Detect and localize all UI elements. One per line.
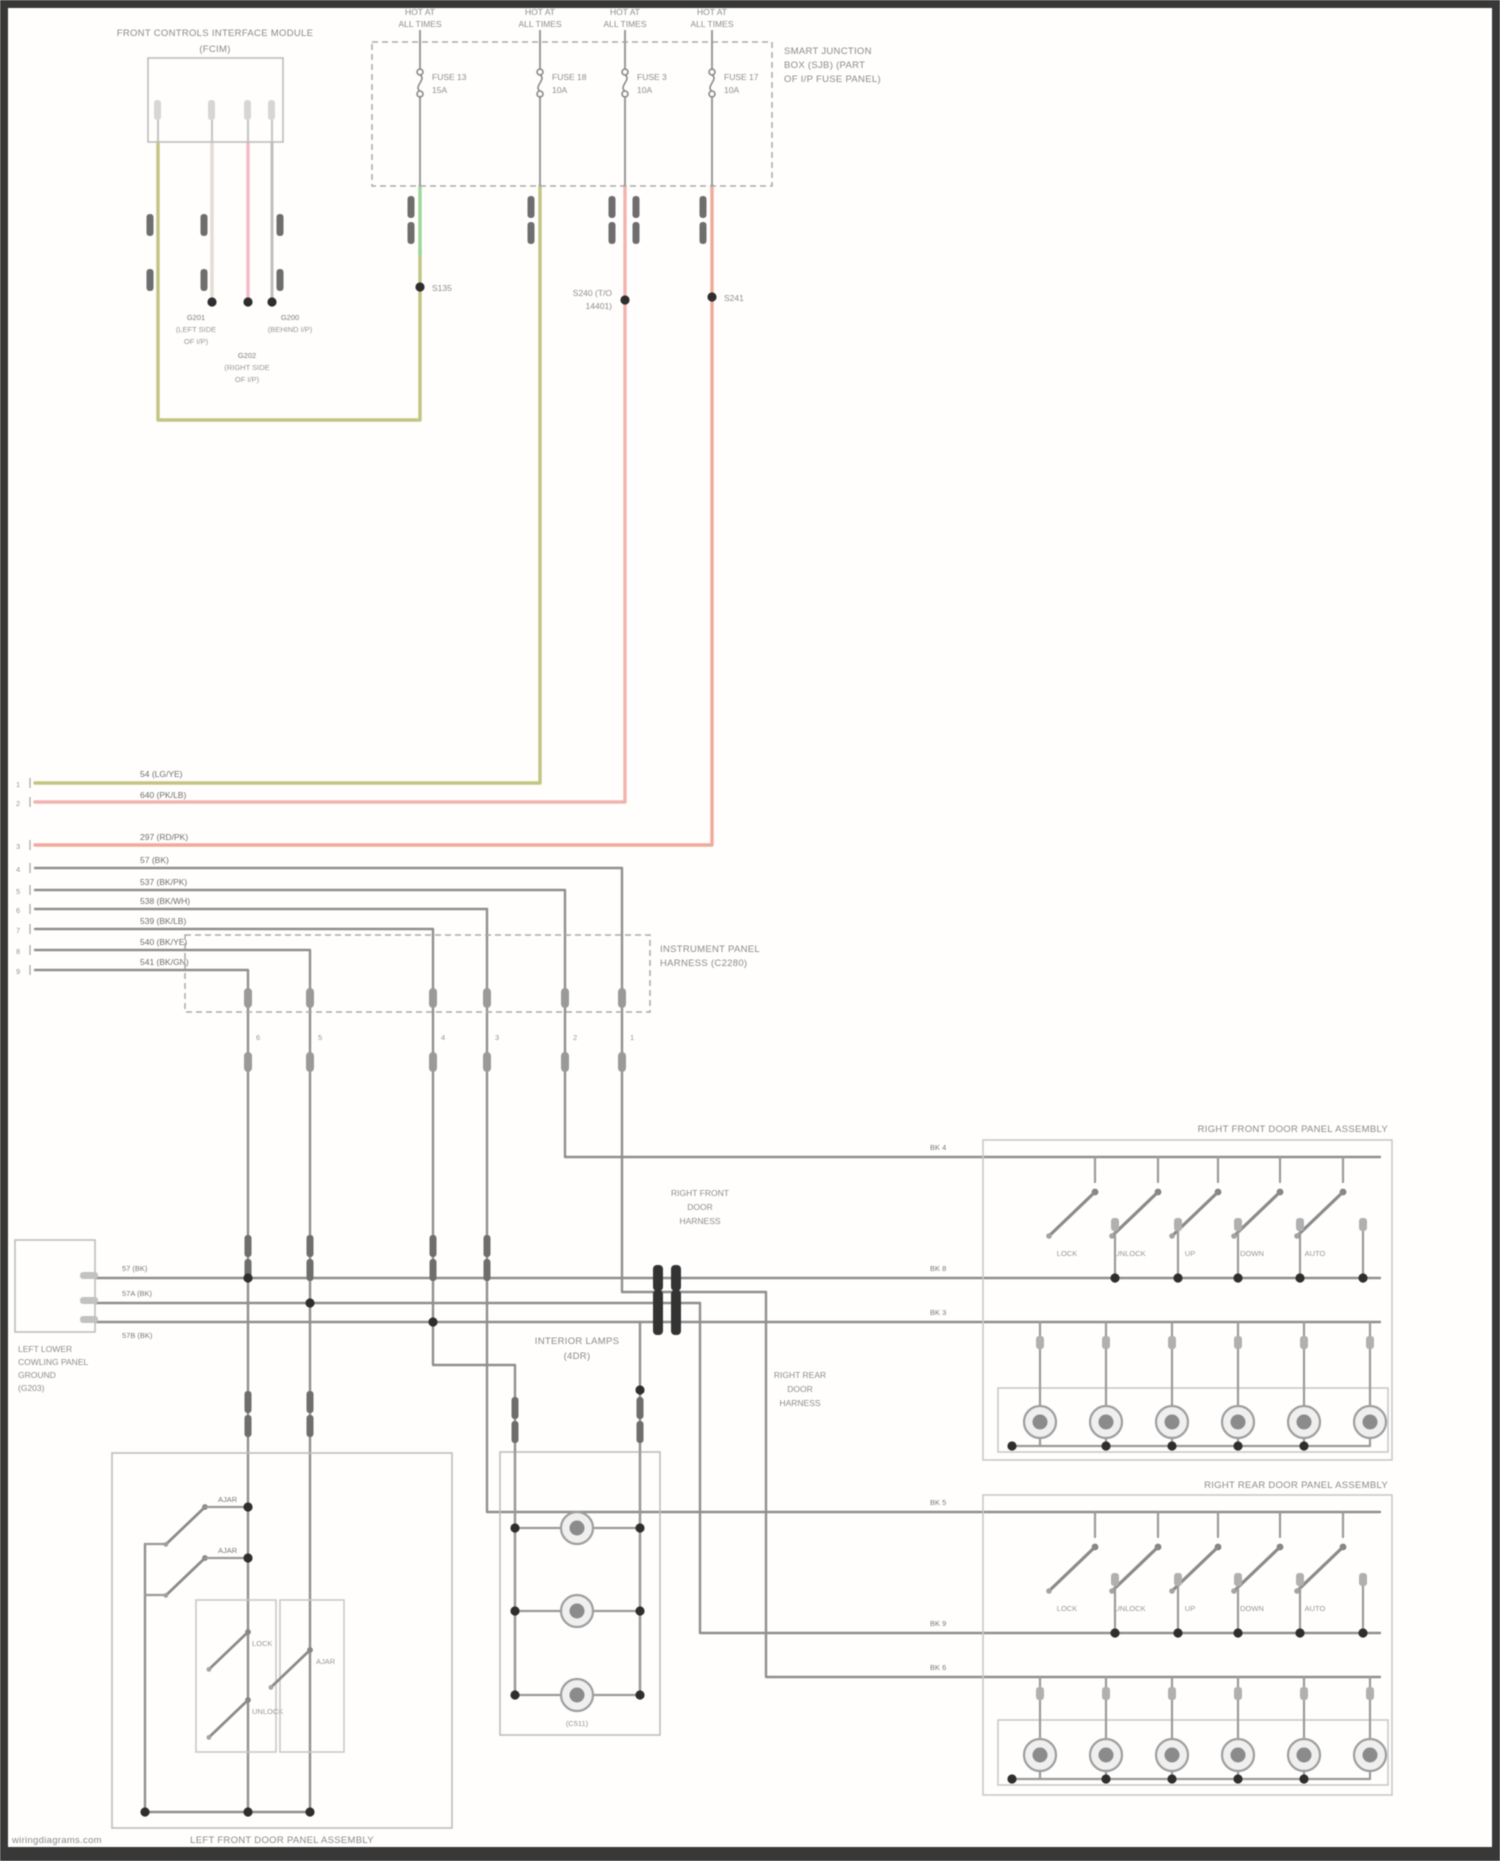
watermark: wiringdiagrams.com (11, 1835, 102, 1846)
lock-switch (207, 1629, 251, 1672)
panel2-harness-2: DOOR (787, 1384, 813, 1394)
panel2-harness-1: RIGHT REAR (774, 1370, 826, 1380)
lamp-box-buses (515, 1452, 640, 1695)
unlock-switch-label: UNLOCK (252, 1707, 283, 1716)
unlock-switch (207, 1697, 251, 1740)
g201-line1: G201 (187, 313, 205, 322)
panel1-switch-5 (1294, 1189, 1346, 1239)
pin-2: 2 (16, 799, 20, 808)
c2280-dashed-box (185, 935, 650, 1012)
c2280-pin-4: 3 (495, 1033, 499, 1042)
splice-s240-line2: 14401) (586, 301, 613, 311)
panel2-sw4-label: DOWN (1240, 1604, 1264, 1613)
sjb-line1: SMART JUNCTION (784, 46, 872, 57)
wire-salmon-fuse4-to-left (35, 186, 712, 845)
panel2-switch-5 (1294, 1544, 1346, 1594)
gb-wire-3: 57B (BK) (122, 1331, 153, 1340)
module-fcim: FRONT CONTROLS INTERFACE MODULE (FCIM) G… (117, 28, 314, 384)
g202-line3: OF I/P) (235, 375, 260, 384)
ground-point-g202 (243, 297, 252, 306)
wire-left-door-ground-bus (145, 1544, 310, 1812)
pin-9: 9 (16, 967, 20, 976)
hot-label-1a: HOT AT (405, 7, 435, 17)
gb-label-3: GROUND (18, 1370, 56, 1380)
module-title-line1: FRONT CONTROLS INTERFACE MODULE (117, 28, 314, 39)
module-title-line2: (FCIM) (199, 44, 230, 55)
fuse-3-amps: 10A (637, 85, 652, 95)
fuse-1-name: FUSE 13 (432, 72, 467, 82)
wire-label-3: 297 (RD/PK) (140, 832, 188, 842)
lamp-box-title-1: INTERIOR LAMPS (535, 1336, 619, 1347)
pin-3: 3 (16, 842, 20, 851)
door-ajar-switch-1 (164, 1504, 208, 1547)
wiring-diagram: FRONT CONTROLS INTERFACE MODULE (FCIM) G… (0, 0, 1500, 1861)
panel2-lamps (998, 1677, 1388, 1785)
fuse-4-name: FUSE 17 (724, 72, 759, 82)
wire-gray-5 (35, 950, 310, 1812)
right-front-door-panel: RIGHT FRONT DOOR PANEL ASSEMBLY BK 4 BK … (671, 1124, 1392, 1460)
wiring-diagram-page: FRONT CONTROLS INTERFACE MODULE (FCIM) G… (0, 0, 1500, 1861)
splice-s135 (415, 282, 424, 291)
panel1-harness-label: RIGHT FRONT DOOR HARNESS (671, 1188, 729, 1226)
lamp-box-title-2: (4DR) (564, 1351, 591, 1362)
g202-line2: (RIGHT SIDE (224, 363, 269, 372)
pin-8: 8 (16, 947, 20, 956)
panel2-title: RIGHT REAR DOOR PANEL ASSEMBLY (1204, 1480, 1388, 1491)
panel1-feed-1: BK 4 (930, 1143, 946, 1152)
panel1-sw5-label: AUTO (1305, 1249, 1326, 1258)
g201-line3: OF I/P) (184, 337, 209, 346)
wire-label-8: 540 (BK/YE) (140, 937, 187, 947)
g200-line1: G200 (281, 313, 299, 322)
pin-7: 7 (16, 926, 20, 935)
c2280-pin-3: 4 (441, 1033, 445, 1042)
pin-6: 6 (16, 906, 20, 915)
panel2-sw2-label: UNLOCK (1114, 1604, 1145, 1613)
ground-labels: G201 (LEFT SIDE OF I/P) G202 (RIGHT SIDE… (176, 313, 313, 384)
c2280-pin-6: 1 (630, 1033, 634, 1042)
pin-4: 4 (16, 865, 20, 874)
door-ajar-switch-3 (269, 1647, 313, 1690)
hot-label-2a: HOT AT (525, 7, 555, 17)
fuse-3-name: FUSE 3 (637, 72, 667, 82)
ajar-switch-1-label: AJAR (218, 1495, 238, 1504)
gb-wire-1: 57 (BK) (122, 1264, 148, 1273)
panel2-switch-1 (1046, 1544, 1098, 1594)
fuse-4-amps: 10A (724, 85, 739, 95)
courtesy-lamp-2-icon (561, 1595, 593, 1627)
module-wire-connectors (147, 214, 284, 291)
panel1-feed-3: BK 3 (930, 1308, 946, 1317)
wire-gray-6 (35, 970, 248, 1812)
hot-label-3a: HOT AT (610, 7, 640, 17)
panel1-harness-3: HARNESS (679, 1216, 720, 1226)
hot-label-3b: ALL TIMES (604, 19, 647, 29)
fuse-3-icon (622, 69, 628, 97)
lock-switch-box (196, 1600, 276, 1752)
g201-line2: (LEFT SIDE (176, 325, 216, 334)
panel2-switch-2 (1109, 1544, 1161, 1594)
splice-s240-line1: S240 (T/O (573, 288, 613, 298)
c2280-label-line2: HARNESS (C2280) (660, 958, 747, 969)
left-edge-pin-numbers: 1 2 3 4 5 6 7 8 9 (16, 780, 20, 976)
left-door-panel: AJAR AJAR LOCK UNLOCK AJAR LEFT FRONT DO… (112, 1453, 452, 1846)
ajar-junction-2 (243, 1553, 252, 1562)
wire-label-4: 57 (BK) (140, 855, 169, 865)
interior-lamp-box: INTERIOR LAMPS (4DR) (C511) (500, 1336, 660, 1735)
panel2-feed-3: BK 6 (930, 1663, 946, 1672)
fuse-1-amps: 15A (432, 85, 447, 95)
pin-5: 5 (16, 887, 20, 896)
panel1-sw2-label: UNLOCK (1114, 1249, 1145, 1258)
c2280-pins-lower (244, 1052, 626, 1072)
c2280-pins-upper (244, 988, 626, 1008)
wire-gray-4 (35, 929, 515, 1695)
page-frame (0, 0, 1500, 1861)
sjb-label: SMART JUNCTION BOX (SJB) (PART OF I/P FU… (784, 46, 881, 85)
ajar-junction-1 (243, 1502, 252, 1511)
wire-label-6: 538 (BK/WH) (140, 896, 190, 906)
panel1-sw4-label: DOWN (1240, 1249, 1264, 1258)
panel1-feed-labels: BK 4 BK 8 BK 3 (930, 1143, 946, 1317)
panel2-feed-2: BK 9 (930, 1619, 946, 1628)
ajar-switch-3-label: AJAR (316, 1657, 336, 1666)
panel1-switch-2 (1109, 1189, 1161, 1239)
panel1-switches: LOCK UNLOCK UP DOWN AUTO (1046, 1157, 1367, 1283)
sjb-line2: BOX (SJB) (PART (784, 60, 865, 71)
panel2-sw1-label: LOCK (1057, 1604, 1077, 1613)
wire-label-1: 54 (LG/YE) (140, 769, 183, 779)
lock-switch-label: LOCK (252, 1639, 272, 1648)
courtesy-lamp-1-icon (561, 1512, 593, 1544)
left-door-box (112, 1453, 452, 1828)
hot-label-1b: ALL TIMES (399, 19, 442, 29)
ground-junction-dots (243, 1273, 644, 1394)
gb-wire-2: 57A (BK) (122, 1289, 153, 1298)
panel1-sw1-label: LOCK (1057, 1249, 1077, 1258)
ajar-switch-box (280, 1600, 344, 1752)
hot-at-all-times-labels: HOT AT ALL TIMES HOT AT ALL TIMES HOT AT… (399, 7, 734, 29)
power-wires (35, 142, 712, 845)
pin-1: 1 (16, 780, 20, 789)
splice-s241 (707, 292, 716, 301)
wire-olive-fuse2-to-left (35, 186, 540, 783)
wire-label-5: 537 (BK/PK) (140, 877, 187, 887)
ground-junction-box: 57 (BK) 57A (BK) 57B (BK) LEFT LOWER COW… (15, 1240, 153, 1393)
left-offpage-wires: 1 2 3 4 5 6 7 8 9 54 (LG/YE) 640 (PK/LB)… (16, 769, 190, 976)
fuse-2-icon (537, 69, 543, 97)
splice-s135-label: S135 (432, 283, 452, 293)
splice-s241-label: S241 (724, 293, 744, 303)
hot-label-4b: ALL TIMES (691, 19, 734, 29)
panel2-sw5-label: AUTO (1305, 1604, 1326, 1613)
fuse-4-icon (709, 69, 715, 97)
ground-wires (35, 868, 1380, 1812)
wire-label-9: 541 (BK/GN) (140, 957, 189, 967)
panel1-harness-2: DOOR (687, 1202, 713, 1212)
splice-s240 (620, 295, 629, 304)
courtesy-lamp-3-icon (561, 1679, 593, 1711)
hot-label-4a: HOT AT (697, 7, 727, 17)
lamp-box-bottom-label: (C511) (566, 1719, 589, 1728)
fuse-2-name: FUSE 18 (552, 72, 587, 82)
c2280-pin-numbers: 6 5 4 3 2 1 (256, 1033, 634, 1042)
module-pins (154, 100, 275, 142)
panel2-harness-label: RIGHT REAR DOOR HARNESS (774, 1370, 826, 1408)
ajar-switch-2-label: AJAR (218, 1546, 238, 1555)
panel1-lamps (998, 1322, 1388, 1452)
sjb-line3: OF I/P FUSE PANEL) (784, 74, 881, 85)
hot-label-2b: ALL TIMES (519, 19, 562, 29)
g200-line2: (BEHIND I/P) (268, 325, 313, 334)
panel1-title: RIGHT FRONT DOOR PANEL ASSEMBLY (1198, 1124, 1389, 1135)
panel1-switch-1 (1046, 1189, 1098, 1239)
fuse-output-connectors (408, 196, 707, 244)
panel2-harness-3: HARNESS (779, 1398, 820, 1408)
c2280-pin-5: 2 (573, 1033, 577, 1042)
wire-label-7: 539 (BK/LB) (140, 916, 186, 926)
panel1-harness-1: RIGHT FRONT (671, 1188, 729, 1198)
door-ajar-switch-2 (164, 1555, 208, 1598)
panel1-feed-2: BK 8 (930, 1264, 946, 1273)
gb-label-1: LEFT LOWER (18, 1344, 72, 1354)
panel2-sw3-label: UP (1185, 1604, 1195, 1613)
fuse-2-amps: 10A (552, 85, 567, 95)
panel2-feed-1: BK 5 (930, 1498, 946, 1507)
panel2-switches: LOCK UNLOCK UP DOWN AUTO (1046, 1512, 1367, 1638)
panel2-feed-labels: BK 5 BK 9 BK 6 (930, 1498, 946, 1672)
c2280-pin-1: 6 (256, 1033, 260, 1042)
wire-label-2: 640 (PK/LB) (140, 790, 186, 800)
ground-point-g200 (267, 297, 276, 306)
g202-line1: G202 (238, 351, 256, 360)
c2280-label-line1: INSTRUMENT PANEL (660, 944, 760, 955)
ground-box-label: LEFT LOWER COWLING PANEL GROUND (G203) (18, 1344, 88, 1393)
wire-olive-module-to-fuse1 (158, 142, 420, 420)
wire-pink-fuse3-to-left (35, 186, 625, 802)
gb-label-2: COWLING PANEL (18, 1357, 88, 1367)
left-door-label: LEFT FRONT DOOR PANEL ASSEMBLY (190, 1835, 374, 1846)
fuse-column-wires (420, 30, 712, 186)
gb-label-4: (G203) (18, 1383, 45, 1393)
inline-connector-c2280: 6 5 4 3 2 1 INSTRUMENT PANEL HARNESS (C2… (185, 935, 760, 1072)
module-box (148, 58, 283, 142)
door-harness-connector-cluster (653, 1265, 681, 1335)
panel1-sw3-label: UP (1185, 1249, 1195, 1258)
fuse-1-icon (417, 69, 423, 97)
wire-ground-h2 (95, 1303, 1380, 1633)
c2280-pin-2: 5 (318, 1033, 322, 1042)
ground-point-g201 (207, 297, 216, 306)
